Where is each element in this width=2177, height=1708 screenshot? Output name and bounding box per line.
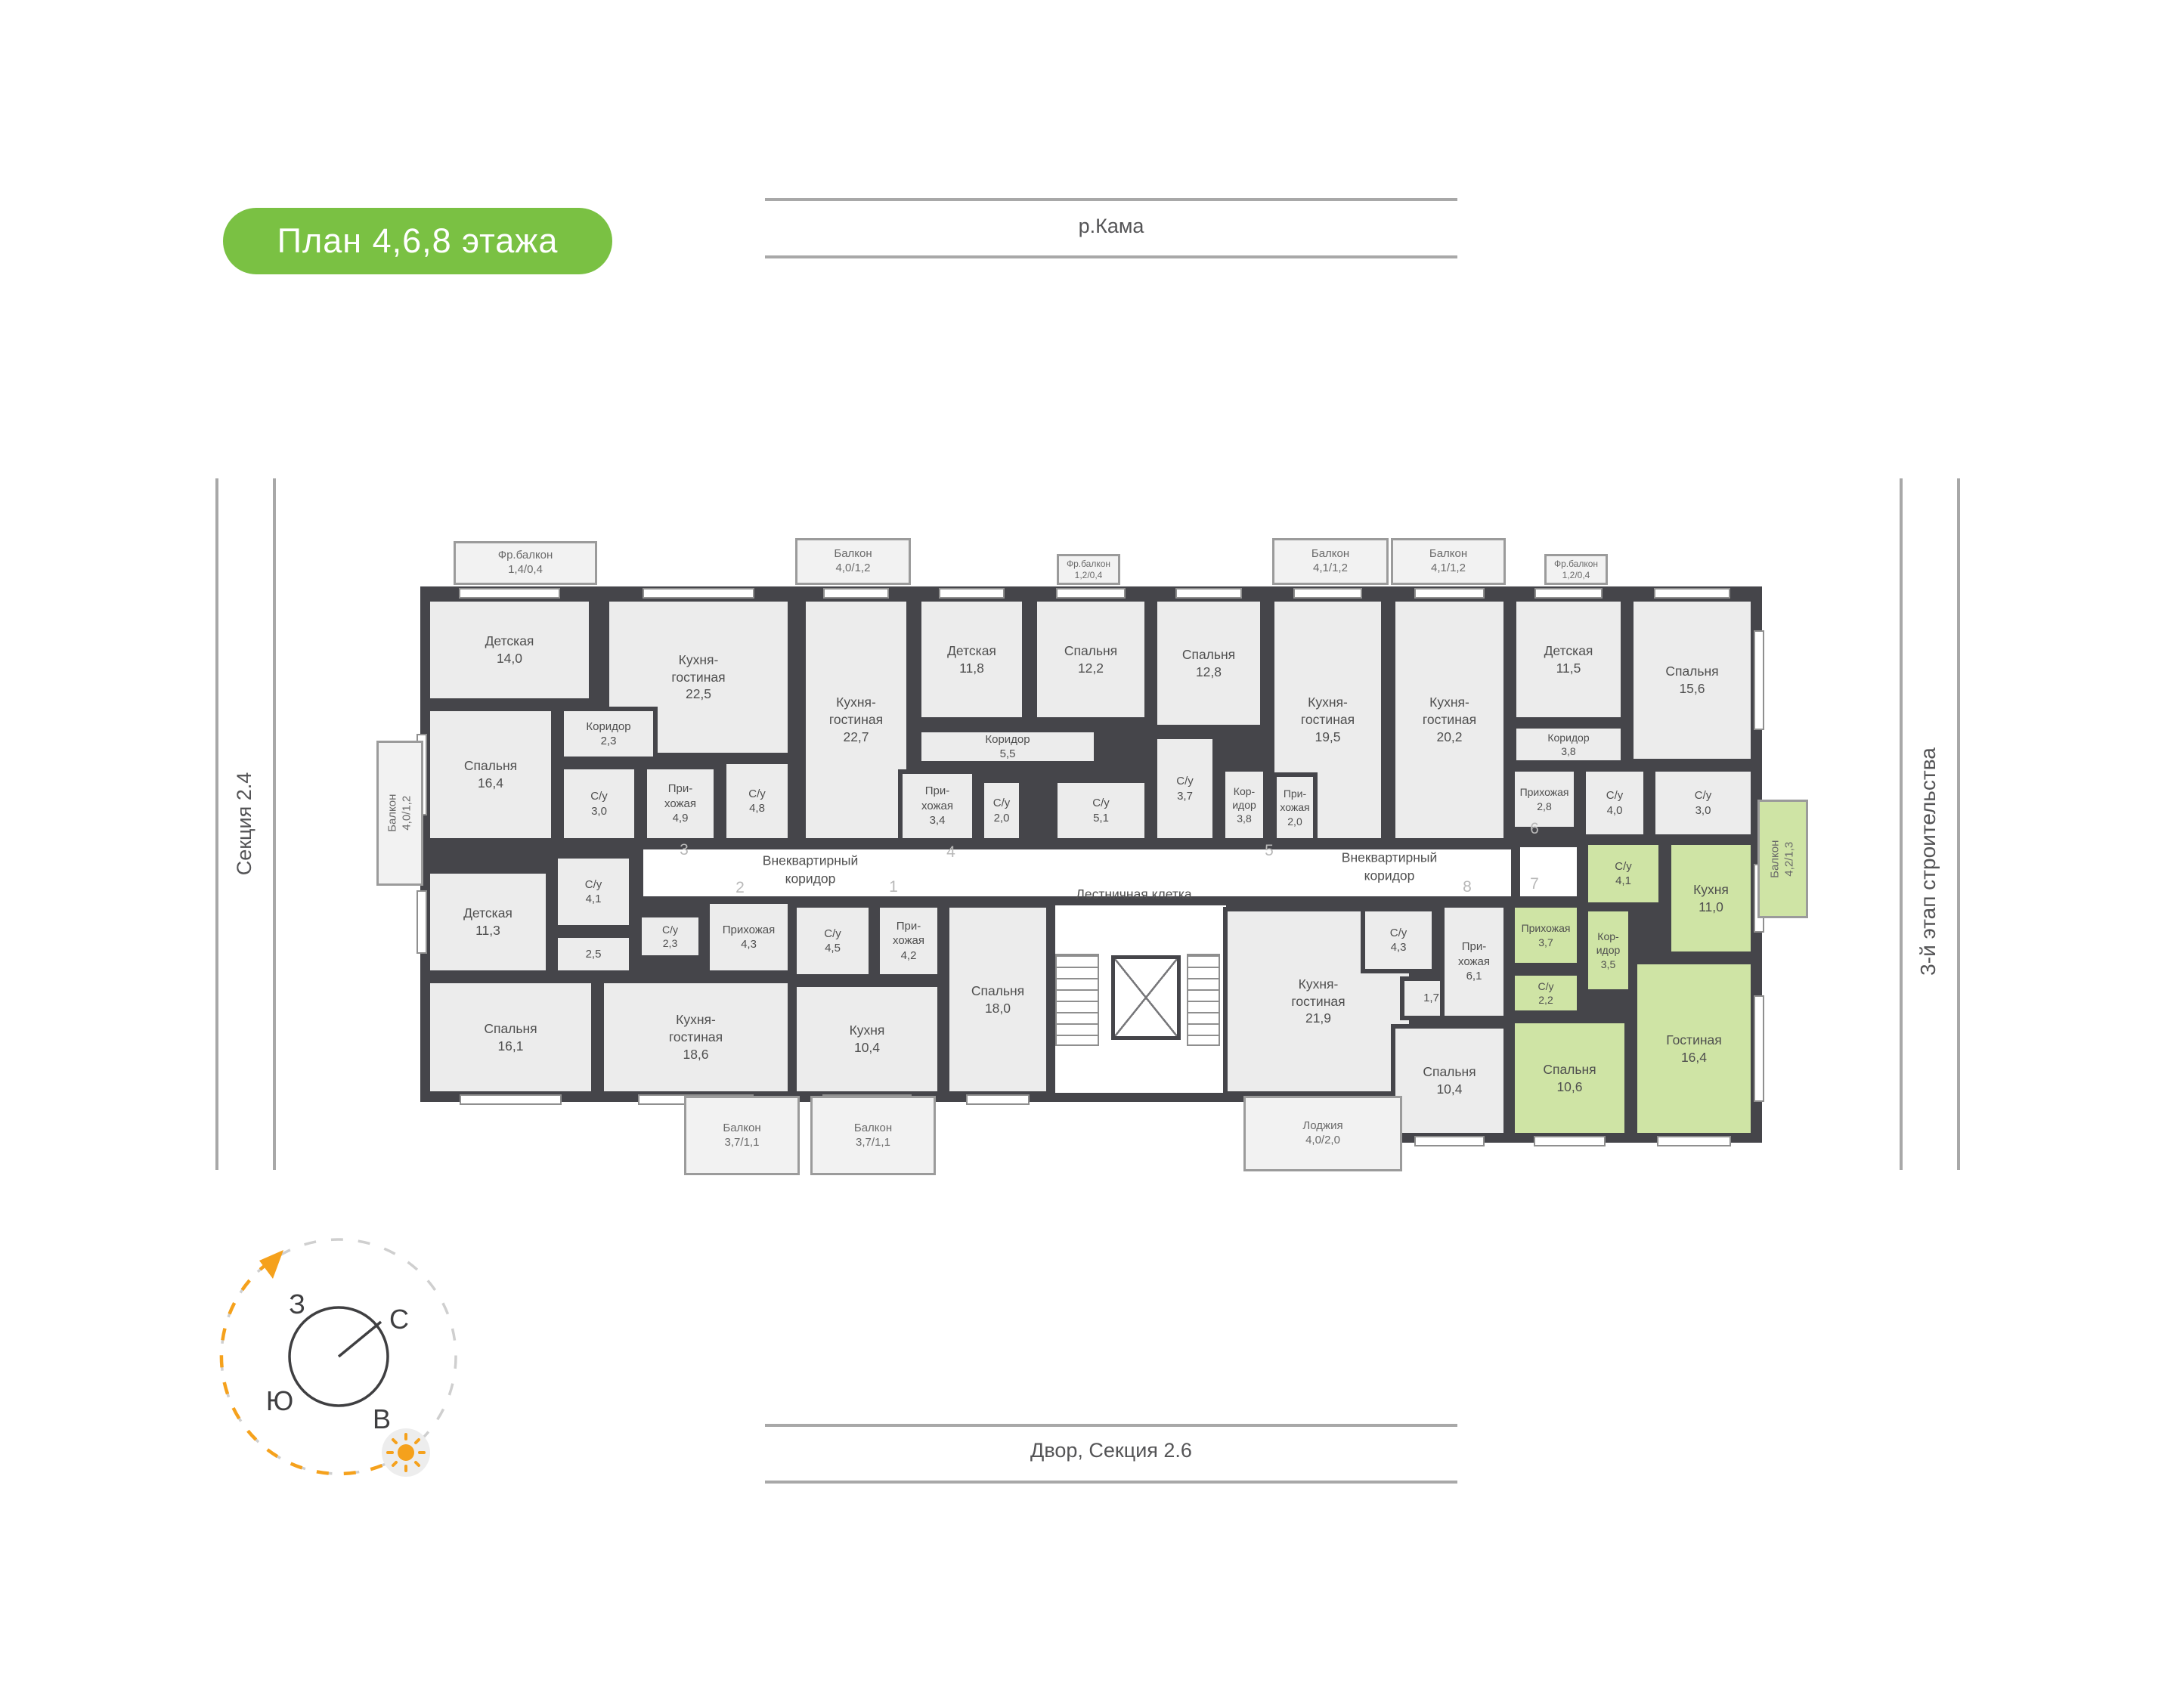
- room: При- хожая 4,9: [643, 765, 718, 843]
- apartment-number: 8: [1463, 878, 1472, 896]
- room-label: Спальня 15,6: [1634, 602, 1751, 759]
- room: С/у 4,5: [792, 903, 873, 979]
- room-label: С/у 2,3: [642, 917, 698, 955]
- compass-east-label: В: [373, 1403, 391, 1434]
- room: Спальня 16,1: [426, 979, 596, 1096]
- room: Кухня 10,4: [792, 982, 942, 1096]
- window-icon: [1654, 588, 1730, 599]
- window-icon: [1657, 1136, 1730, 1146]
- room: С/у 4,8: [722, 760, 792, 843]
- room: Кор- идор 3,5: [1584, 907, 1633, 994]
- room-label: Детская 14,0: [430, 602, 589, 698]
- room: С/у 4,0: [1581, 767, 1648, 839]
- balcony: Лоджия 4,0/2,0: [1243, 1096, 1402, 1171]
- window-icon: [1754, 630, 1764, 730]
- room: С/у 2,3: [637, 913, 703, 960]
- room-label: Лоджия 4,0/2,0: [1246, 1098, 1400, 1169]
- window-icon: [1175, 588, 1243, 599]
- room: Кухня- гостиная 22,7: [801, 597, 911, 843]
- room: При- хожая 4,2: [875, 903, 942, 979]
- room-label: Кухня 10,4: [797, 987, 937, 1091]
- room: С/у 5,1: [1053, 778, 1149, 843]
- room-label: Кухня- гостиная 18,6: [604, 983, 788, 1091]
- room: При- хожая 2,0: [1272, 772, 1318, 843]
- window-icon: [460, 1094, 562, 1105]
- room-label: С/у 3,0: [1655, 772, 1751, 834]
- room-label: Балкон 4,0/1,2: [797, 540, 909, 583]
- room-label: Фр.балкон 1,2/0,4: [1547, 556, 1606, 583]
- room: Прихожая 3,7: [1510, 903, 1581, 967]
- window-icon: [823, 588, 889, 599]
- window-icon: [643, 588, 755, 599]
- room: С/у 4,1: [553, 854, 633, 930]
- balcony: Фр.балкон 1,2/0,4: [1544, 554, 1608, 585]
- window-icon: [1293, 588, 1363, 599]
- room: С/у 2,2: [1510, 971, 1581, 1015]
- compass: З С Ю В: [215, 1215, 465, 1487]
- room-label: Балкон 4,1/1,2: [1393, 540, 1503, 583]
- room-label: Прихожая 3,7: [1515, 908, 1577, 963]
- room-label: С/у 2,2: [1515, 976, 1577, 1010]
- apartment-number: 1: [889, 878, 898, 896]
- stair-flight: [1055, 954, 1099, 1046]
- apartment-number: 6: [1530, 820, 1539, 838]
- compass-north-label: С: [389, 1304, 409, 1335]
- room-label: Коридор 3,8: [1516, 729, 1621, 760]
- room-label: Балкон 4,1/1,2: [1274, 540, 1386, 583]
- room-label: Балкон 3,7/1,1: [813, 1098, 934, 1173]
- window-icon: [966, 1094, 1030, 1105]
- room-label: Коридор 5,5: [921, 732, 1094, 761]
- balcony: Балкон 4,0/1,2: [376, 741, 423, 886]
- compass-arrow-icon: [259, 1250, 283, 1279]
- room: С/у 4,1: [1584, 840, 1663, 907]
- room-label: С/у 5,1: [1058, 783, 1144, 838]
- apartment-number: 3: [680, 841, 689, 859]
- room: Спальня 10,4: [1391, 1024, 1508, 1137]
- window-icon: [417, 890, 427, 954]
- room: С/у 3,0: [1651, 767, 1755, 839]
- balcony: Фр.балкон 1,4/0,4: [454, 541, 597, 585]
- compass-west-label: З: [289, 1289, 305, 1320]
- balcony: Балкон 3,7/1,1: [810, 1096, 936, 1175]
- room: Спальня 12,2: [1033, 597, 1149, 722]
- room: С/у 3,7: [1153, 735, 1217, 843]
- apartment-number: 5: [1265, 842, 1274, 860]
- room: Прихожая 2,8: [1510, 767, 1578, 831]
- room-label: Кор- идор 3,8: [1225, 772, 1263, 838]
- window-icon: [1414, 588, 1485, 599]
- room-label: Балкон 4,2/1,3: [1760, 802, 1806, 916]
- room: 2,5: [553, 933, 633, 975]
- room-label: Балкон 4,0/1,2: [379, 743, 421, 883]
- room-label: Детская 11,5: [1516, 602, 1621, 717]
- window-icon: [1534, 588, 1603, 599]
- room-label: С/у 2,0: [984, 783, 1019, 838]
- room-label: Фр.балкон 1,4/0,4: [456, 543, 595, 583]
- room-label: С/у 4,5: [797, 908, 869, 974]
- room-label: При- хожая 3,4: [903, 774, 972, 838]
- window-icon: [939, 588, 1005, 599]
- area-annotation: Внеквартирный коридор: [1342, 849, 1437, 884]
- room-label: Балкон 3,7/1,1: [686, 1098, 797, 1173]
- room-label: Прихожая 4,3: [710, 904, 788, 970]
- room: Спальня 12,8: [1153, 597, 1265, 729]
- balcony: Балкон 3,7/1,1: [684, 1096, 800, 1175]
- room-label: Спальня 12,8: [1157, 602, 1260, 725]
- room-label: Прихожая 2,8: [1515, 772, 1574, 827]
- room-label: При- хожая 2,0: [1277, 777, 1313, 838]
- room: Кухня- гостиная 20,2: [1391, 597, 1508, 843]
- elevator-shaft: [1111, 955, 1181, 1040]
- room: Кухня- гостиная 18,6: [599, 979, 792, 1096]
- room-label: С/у 4,1: [558, 859, 629, 925]
- room-label: Гостиная 16,4: [1637, 964, 1751, 1133]
- room: Детская 11,3: [426, 869, 550, 975]
- room: Спальня 10,6: [1510, 1019, 1629, 1137]
- balcony: Балкон 4,0/1,2: [795, 538, 911, 585]
- room: Детская 11,8: [917, 597, 1027, 722]
- apartment-number: 4: [946, 843, 955, 862]
- floor-plan-page: План 4,6,8 этажа р.Кама Двор, Секция 2.6…: [0, 0, 2177, 1708]
- balcony: Балкон 4,2/1,3: [1757, 800, 1808, 918]
- room-label: С/у 4,8: [726, 764, 788, 838]
- room-label: С/у 4,1: [1588, 845, 1658, 902]
- room-label: При- хожая 4,9: [647, 769, 714, 838]
- room: Спальня 15,6: [1629, 597, 1755, 763]
- room-label: Кухня- гостиная 20,2: [1395, 602, 1503, 838]
- room-label: Спальня 18,0: [949, 908, 1046, 1091]
- room-label: С/у 3,7: [1157, 739, 1212, 838]
- room: С/у 3,0: [559, 765, 639, 843]
- window-icon: [1754, 995, 1764, 1102]
- room-label: При- хожая 4,2: [880, 908, 937, 974]
- room-label: Детская 11,3: [430, 874, 546, 970]
- sun-icon: [388, 1434, 424, 1471]
- room: Кухня 11,0: [1667, 840, 1755, 956]
- room-label: Спальня 10,4: [1395, 1029, 1503, 1133]
- window-icon: [459, 588, 559, 599]
- room: Коридор 2,3: [559, 707, 658, 761]
- window-icon: [1414, 1136, 1485, 1146]
- area-annotation: Внеквартирный коридор: [763, 852, 858, 887]
- room-label: При- хожая 6,1: [1445, 908, 1503, 1016]
- stair-flight: [1187, 954, 1220, 1046]
- room: При- хожая 3,4: [898, 769, 977, 843]
- balcony: Балкон 4,1/1,2: [1391, 538, 1506, 585]
- room: Детская 14,0: [426, 597, 593, 703]
- room-label: Кухня- гостиная 22,7: [806, 602, 906, 838]
- room: Кор- идор 3,8: [1221, 767, 1268, 843]
- room-label: Кухня 11,0: [1671, 845, 1751, 951]
- room: Спальня 16,4: [426, 707, 556, 843]
- window-icon: [1534, 1136, 1605, 1146]
- room: Прихожая 4,3: [705, 899, 792, 975]
- room: С/у 2,0: [980, 778, 1023, 843]
- room-label: С/у 4,3: [1365, 911, 1432, 969]
- apartment-number: 7: [1530, 875, 1539, 893]
- room: При- хожая 6,1: [1440, 903, 1508, 1020]
- room-label: С/у 3,0: [564, 769, 634, 838]
- room-label: С/у 4,0: [1586, 772, 1643, 834]
- room-label: 2,5: [558, 938, 629, 970]
- room-label: Спальня 16,1: [430, 983, 591, 1091]
- window-icon: [1056, 588, 1126, 599]
- room-label: Спальня 10,6: [1515, 1023, 1624, 1133]
- compass-south-label: Ю: [266, 1385, 293, 1416]
- room: Детская 11,5: [1512, 597, 1625, 722]
- room-label: Спальня 12,2: [1037, 602, 1144, 717]
- room: Спальня 18,0: [945, 903, 1051, 1096]
- room: Коридор 3,8: [1512, 724, 1625, 765]
- area-annotation: Лестничная клетка: [1076, 886, 1191, 904]
- balcony: Фр.балкон 1,2/0,4: [1057, 554, 1120, 585]
- room-label: Фр.балкон 1,2/0,4: [1059, 556, 1118, 583]
- apartment-number: 2: [735, 879, 745, 897]
- room-label: Детская 11,8: [921, 602, 1022, 717]
- room: Коридор 5,5: [917, 728, 1098, 766]
- room: С/у 4,3: [1361, 907, 1436, 973]
- room: Гостиная 16,4: [1633, 960, 1755, 1137]
- room-label: Спальня 16,4: [430, 711, 551, 838]
- room-label: Коридор 2,3: [564, 711, 653, 757]
- common-area: [1516, 843, 1581, 901]
- room-label: Кор- идор 3,5: [1588, 911, 1628, 989]
- balcony: Балкон 4,1/1,2: [1272, 538, 1389, 585]
